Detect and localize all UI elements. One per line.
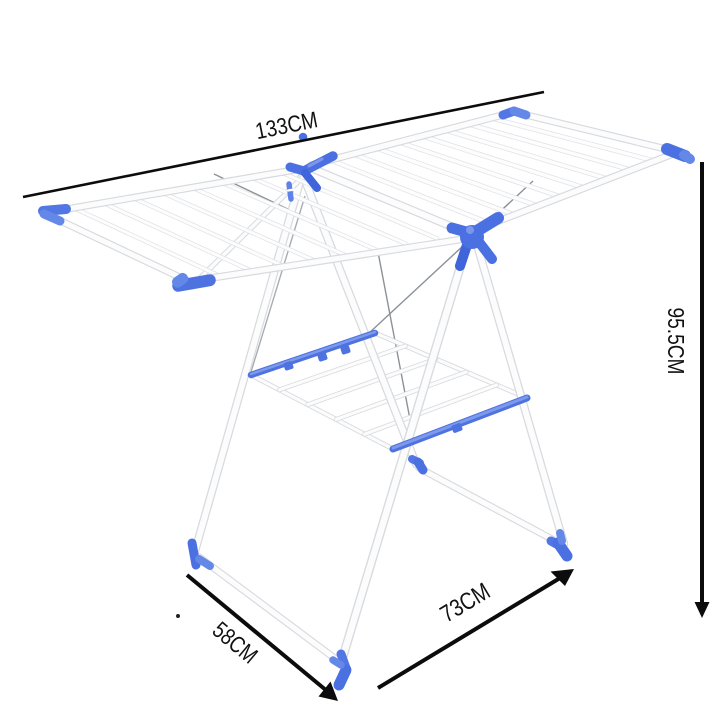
svg-text:95.5CM: 95.5CM	[663, 308, 689, 375]
